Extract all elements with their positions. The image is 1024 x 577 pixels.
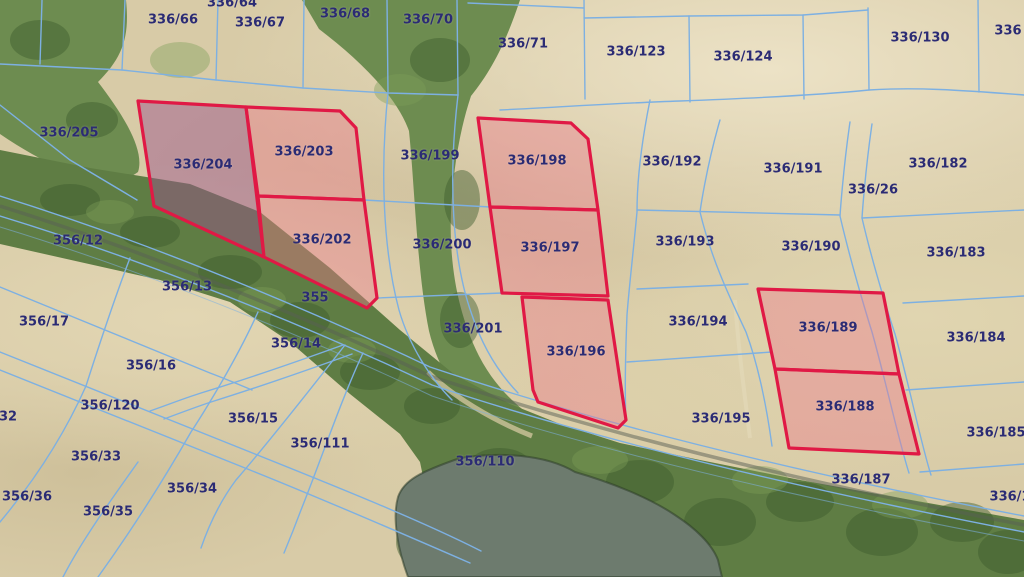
parcel-label-336-200: 336/200: [412, 238, 471, 253]
parcel-label-336-26: 336/26: [848, 183, 898, 198]
parcel-label-336-197: 336/197: [520, 241, 579, 256]
parcel-label-336-193: 336/193: [655, 235, 714, 250]
cadastral-map: 336/64336/66336/67336/68336/70336/71336/…: [0, 0, 1024, 577]
parcel-label-336-188: 336/188: [815, 400, 874, 415]
parcel-label-356-12: 356/12: [53, 234, 103, 249]
parcel-label-356-35: 356/35: [83, 505, 133, 520]
parcel-label-336-66: 336/66: [148, 13, 198, 28]
parcel-label-356-110: 356/110: [455, 455, 514, 470]
parcel-label-356-120: 356/120: [80, 399, 139, 414]
parcel-label-336-203: 336/203: [274, 145, 333, 160]
parcel-label-336-196: 336/196: [546, 345, 605, 360]
parcel-label-32: 32: [0, 410, 17, 425]
parcel-label-336-64: 336/64: [207, 0, 257, 11]
parcel-label-356-36: 356/36: [2, 490, 52, 505]
parcel-label-356-14: 356/14: [271, 337, 321, 352]
parcel-label-336-194: 336/194: [668, 315, 727, 330]
parcel-label-336-202: 336/202: [292, 233, 351, 248]
parcel-label-336: 336: [994, 24, 1021, 39]
parcel-label-336-71: 336/71: [498, 37, 548, 52]
parcel-label-336-130: 336/130: [890, 31, 949, 46]
parcel-label-336-124: 336/124: [713, 50, 772, 65]
parcel-label-336-67: 336/67: [235, 16, 285, 31]
parcel-label-336-123: 336/123: [606, 45, 665, 60]
parcel-label-355: 355: [301, 291, 328, 306]
parcel-label-356-17: 356/17: [19, 315, 69, 330]
parcel-label-356-13: 356/13: [162, 280, 212, 295]
parcel-label-336-191: 336/191: [763, 162, 822, 177]
parcel-label-336-185: 336/185: [966, 426, 1024, 441]
parcel-label-336-204: 336/204: [173, 158, 232, 173]
parcel-label-336-201: 336/201: [443, 322, 502, 337]
parcel-336-196-highlight[interactable]: [522, 297, 626, 428]
parcel-label-336-70: 336/70: [403, 13, 453, 28]
parcel-336-204-highlight[interactable]: [138, 101, 264, 257]
parcel-label-336-192: 336/192: [642, 155, 701, 170]
parcel-label-336-187: 336/187: [831, 473, 890, 488]
parcel-label-336-199: 336/199: [400, 149, 459, 164]
parcel-label-336-189: 336/189: [798, 321, 857, 336]
parcel-label-336-68: 336/68: [320, 7, 370, 22]
parcel-label-336-205: 336/205: [39, 126, 98, 141]
parcel-label-356-33: 356/33: [71, 450, 121, 465]
highlighted-parcels: [0, 0, 1024, 577]
parcel-label-336-198: 336/198: [507, 154, 566, 169]
parcel-label-336-1: 336/1: [990, 490, 1024, 505]
parcel-label-356-34: 356/34: [167, 482, 217, 497]
parcel-label-336-183: 336/183: [926, 246, 985, 261]
parcel-label-356-16: 356/16: [126, 359, 176, 374]
parcel-label-356-111: 356/111: [290, 437, 349, 452]
parcel-label-336-184: 336/184: [946, 331, 1005, 346]
parcel-label-356-15: 356/15: [228, 412, 278, 427]
parcel-label-336-182: 336/182: [908, 157, 967, 172]
parcel-label-336-195: 336/195: [691, 412, 750, 427]
parcel-label-336-190: 336/190: [781, 240, 840, 255]
